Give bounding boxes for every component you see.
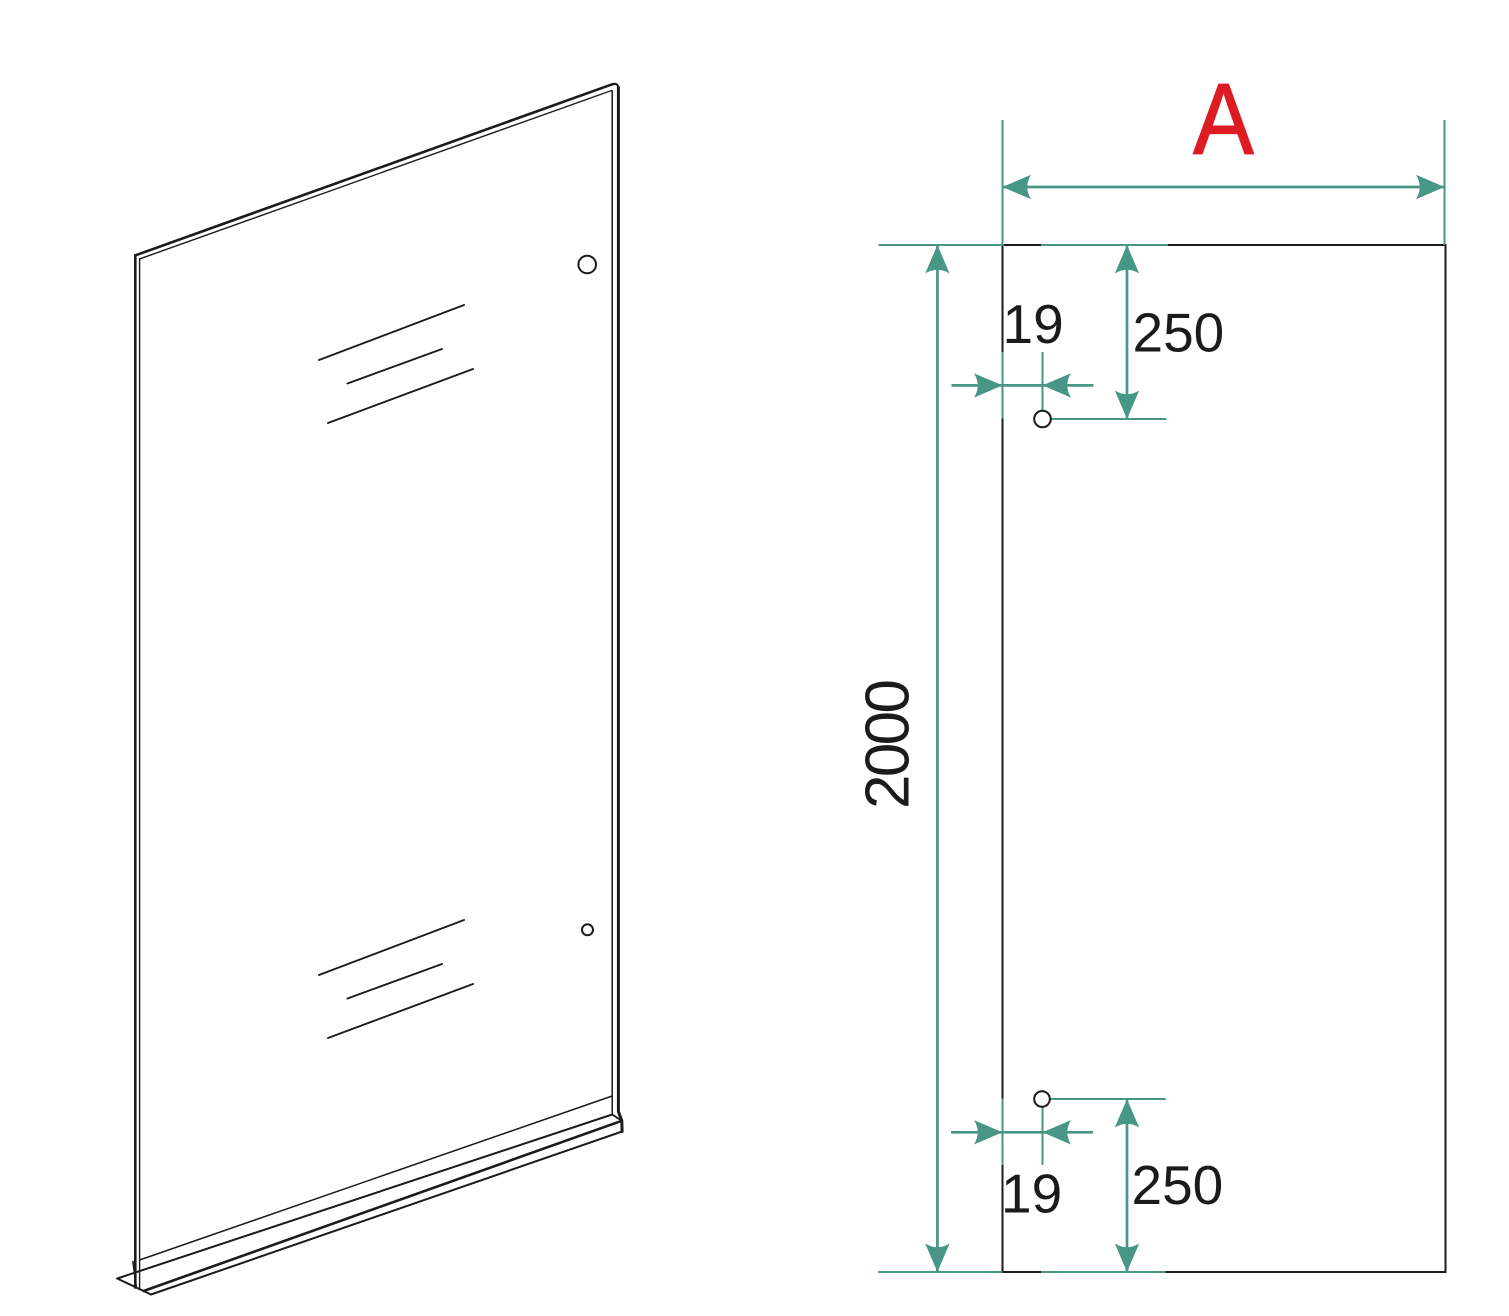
svg-text:2000: 2000 — [854, 679, 923, 809]
svg-text:250: 250 — [1132, 1154, 1224, 1216]
svg-text:A: A — [1193, 64, 1254, 176]
svg-text:250: 250 — [1133, 302, 1225, 364]
svg-text:19: 19 — [1003, 293, 1064, 355]
svg-text:19: 19 — [1001, 1163, 1062, 1225]
